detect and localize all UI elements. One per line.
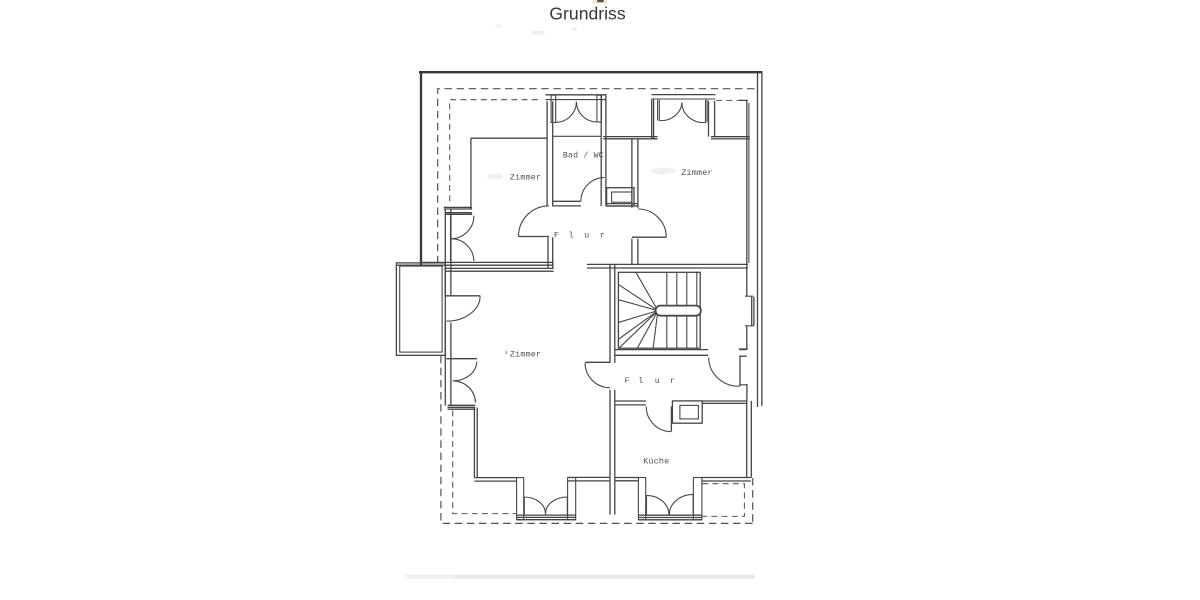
- svg-text:Bad / WC: Bad / WC: [563, 151, 604, 161]
- svg-text:Zimmer: Zimmer: [510, 173, 541, 183]
- svg-text:Zimmer: Zimmer: [681, 168, 712, 178]
- svg-text:Grundriss: Grundriss: [549, 4, 625, 24]
- svg-text:Zimmer: Zimmer: [510, 349, 541, 359]
- svg-text:Küche: Küche: [643, 456, 669, 466]
